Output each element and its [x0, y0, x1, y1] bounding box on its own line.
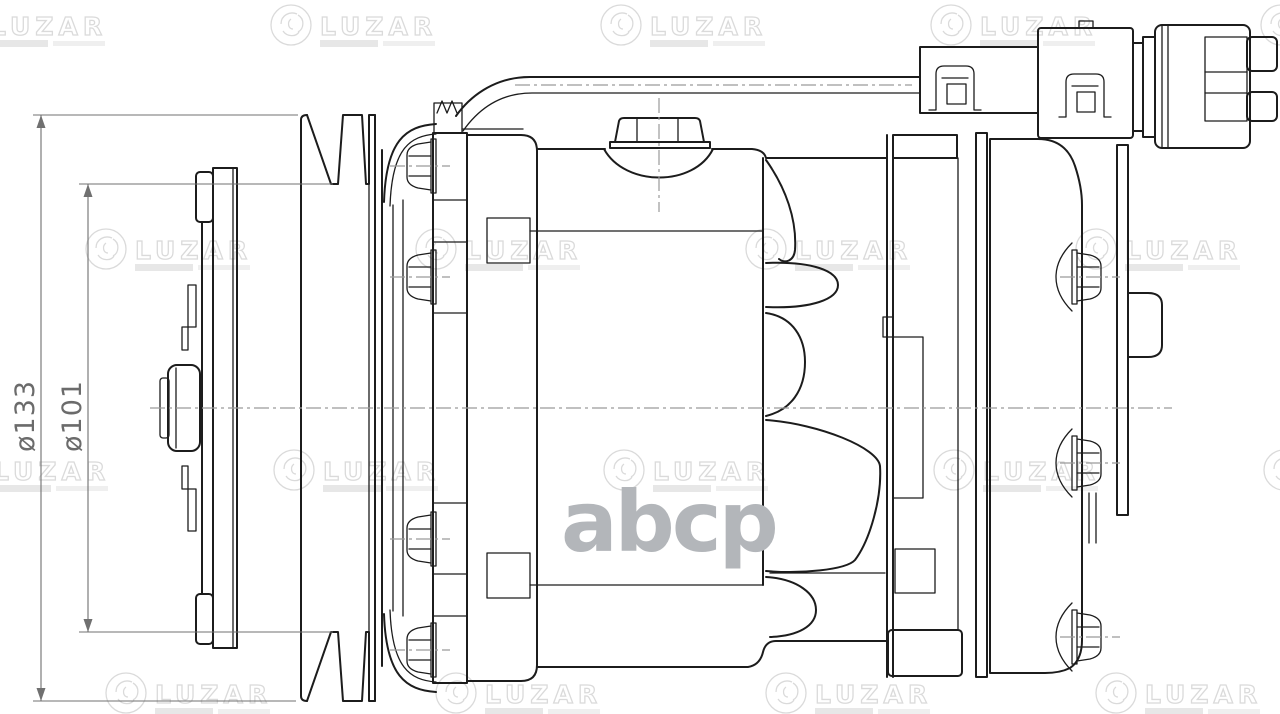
front-head-boss	[487, 553, 530, 598]
dimension-arrow	[37, 115, 46, 128]
coil-terminal-clip	[434, 103, 462, 133]
rear-head	[990, 139, 1101, 673]
compressor-body	[530, 118, 888, 667]
dimension-arrow	[84, 184, 93, 197]
pulley-grooves-top	[307, 115, 375, 184]
connector-c	[1155, 25, 1250, 148]
compressor-assembly	[160, 21, 1277, 701]
connector-a	[920, 47, 1038, 113]
dimension-label-101: ø101	[57, 380, 88, 452]
coil-housing	[382, 101, 523, 692]
rear-casting-lobes	[766, 160, 885, 637]
rear-section	[883, 133, 987, 677]
connector-c-tab	[1247, 92, 1277, 121]
pulley-grooves-bottom	[307, 632, 375, 701]
rear-gasket-plate	[976, 133, 987, 677]
rear-top-block	[893, 135, 957, 158]
connectors	[920, 21, 1277, 148]
abcp-watermark: abcp	[561, 473, 776, 571]
dimension-label-133: ø133	[10, 380, 41, 452]
rear-bottom-block	[888, 630, 962, 676]
connector-c-tab	[1247, 37, 1277, 71]
dimension-arrow	[84, 619, 93, 632]
dimension-arrow	[37, 688, 46, 701]
technical-drawing-page: LUZAR	[0, 0, 1280, 714]
bracket-tab	[1128, 293, 1162, 357]
compressor-line-drawing: LUZAR	[0, 0, 1280, 714]
